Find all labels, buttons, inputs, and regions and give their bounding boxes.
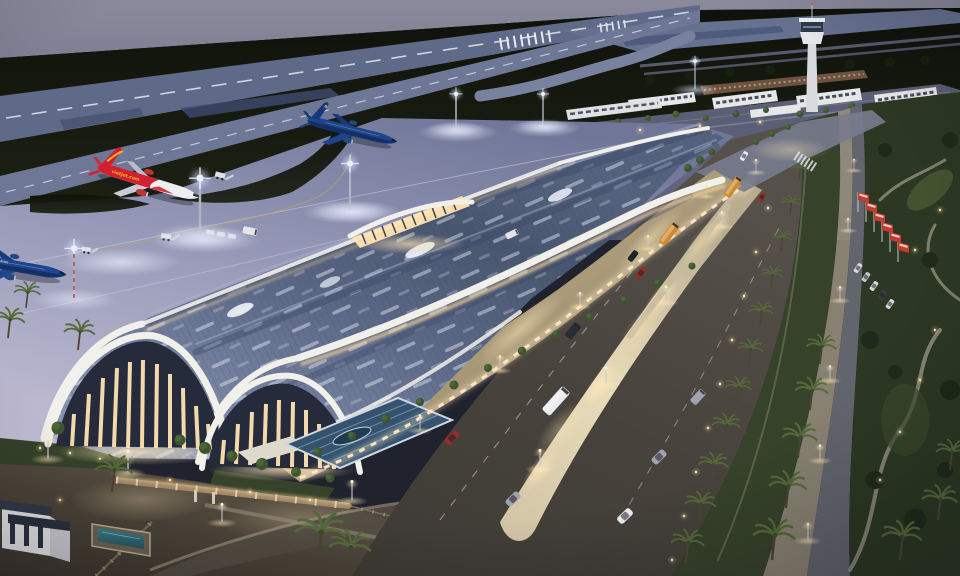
vignette [0, 0, 960, 576]
airport-rendering: vietjet.com Vietnam Airlines [0, 0, 960, 576]
scene-canvas: vietjet.com Vietnam Airlines [0, 0, 960, 576]
